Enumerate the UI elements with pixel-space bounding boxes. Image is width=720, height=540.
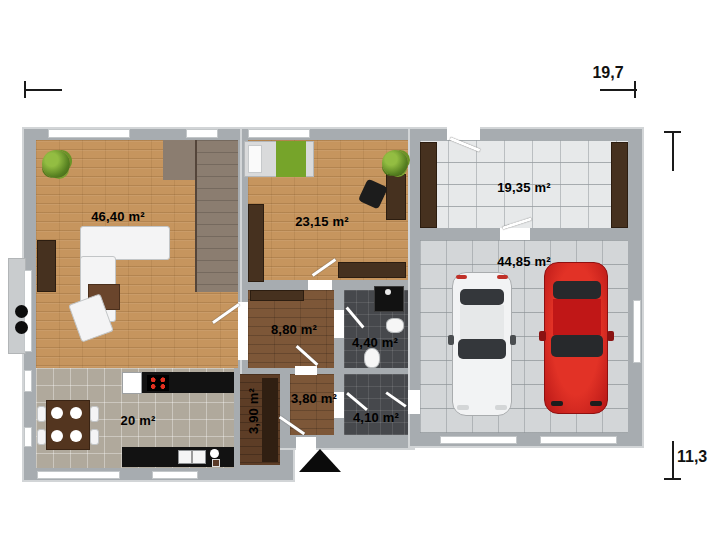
car-roof	[553, 299, 601, 335]
car-headlight	[551, 401, 563, 406]
kitchen-label: 20 m²	[121, 413, 156, 428]
window	[48, 129, 130, 138]
window	[37, 471, 120, 479]
car-taillight	[456, 275, 467, 279]
sink-icon	[386, 318, 404, 333]
car-headlight	[495, 405, 507, 410]
hallway-entryhall-door	[295, 366, 317, 375]
stairs-railing	[195, 140, 197, 292]
top-dimension-line-left	[24, 89, 62, 91]
kitchen-sink-icon	[178, 450, 206, 464]
desk	[386, 174, 406, 220]
plant-icon	[42, 150, 70, 178]
plate	[51, 430, 63, 442]
storage-garage-door	[500, 228, 530, 240]
plant-icon	[382, 150, 408, 176]
window	[633, 300, 641, 363]
wardrobe	[248, 204, 264, 282]
closet-label: 3,90 m²	[246, 388, 261, 434]
living-room-label: 46,40 m²	[91, 209, 145, 224]
cooktop-icon	[147, 375, 169, 391]
stairs-run	[197, 140, 238, 292]
car-mirror	[539, 331, 546, 341]
right-dimension-line-bottom	[672, 441, 674, 480]
floor-plan: 19,7 11,3	[0, 0, 720, 540]
top-dimension-line-right	[600, 89, 637, 91]
wc-garage-door	[408, 390, 420, 414]
chair	[37, 429, 46, 445]
right-dimension-line-top	[672, 131, 674, 171]
kitchen-box	[212, 459, 220, 467]
shower-head	[385, 289, 391, 295]
window	[248, 129, 310, 138]
bedroom-door	[308, 280, 332, 290]
window	[24, 370, 32, 392]
white-car	[452, 272, 512, 416]
hallway-label: 8,80 m²	[271, 322, 317, 337]
garage-label: 44,85 m²	[497, 254, 551, 269]
car-taillight	[497, 275, 508, 279]
car-mirror	[607, 331, 614, 341]
storage-cabinet	[420, 142, 437, 228]
car-windshield	[551, 335, 603, 357]
bathroom-label: 4,40 m²	[352, 335, 398, 350]
living-hallway-door	[238, 302, 248, 360]
top-dimension-tick-right	[634, 81, 636, 98]
chair	[90, 406, 99, 422]
entrance-arrow-icon	[299, 449, 341, 472]
garage-door	[540, 436, 617, 444]
sofa	[80, 226, 170, 260]
red-car	[544, 262, 608, 414]
bed-pillow	[248, 145, 262, 173]
toilet-icon	[364, 348, 380, 368]
faucet-icon	[210, 449, 219, 458]
stove-icon	[15, 305, 28, 318]
bathroom-door	[334, 310, 344, 338]
chair	[90, 429, 99, 445]
storage-room-label: 19,35 m²	[497, 180, 551, 195]
plate	[51, 407, 63, 419]
fridge	[122, 372, 142, 394]
top-dimension-tick-left	[24, 81, 26, 98]
width-dimension-label: 19,7	[580, 64, 636, 82]
window	[186, 129, 218, 138]
bedroom-label: 23,15 m²	[295, 214, 349, 229]
tv-cabinet	[37, 240, 56, 292]
car-windshield	[458, 339, 506, 359]
hallway-shelf	[250, 290, 304, 301]
storage-cabinet	[611, 142, 628, 228]
wc-label: 4,10 m²	[353, 410, 399, 425]
car-headlight	[590, 401, 602, 406]
plate	[70, 430, 82, 442]
car-roof	[460, 305, 504, 339]
right-dimension-tick-top	[664, 131, 681, 133]
entry-hall-label: 3,80 m²	[291, 391, 337, 406]
car-headlight	[457, 405, 469, 410]
closet-wardrobe	[262, 378, 278, 462]
stove-icon	[15, 321, 28, 334]
car-rear-window	[553, 281, 601, 299]
bed-blanket	[276, 141, 306, 177]
car-rear-window	[460, 289, 504, 305]
wc-floor	[344, 374, 408, 435]
plate	[70, 407, 82, 419]
right-dimension-tick-bottom	[664, 478, 681, 480]
window	[152, 471, 198, 479]
depth-dimension-label: 11,3	[677, 448, 707, 466]
car-mirror	[448, 335, 454, 345]
window	[24, 427, 32, 447]
car-mirror	[510, 335, 516, 345]
chair	[37, 406, 46, 422]
dresser	[338, 262, 406, 278]
garage-door	[440, 436, 517, 444]
